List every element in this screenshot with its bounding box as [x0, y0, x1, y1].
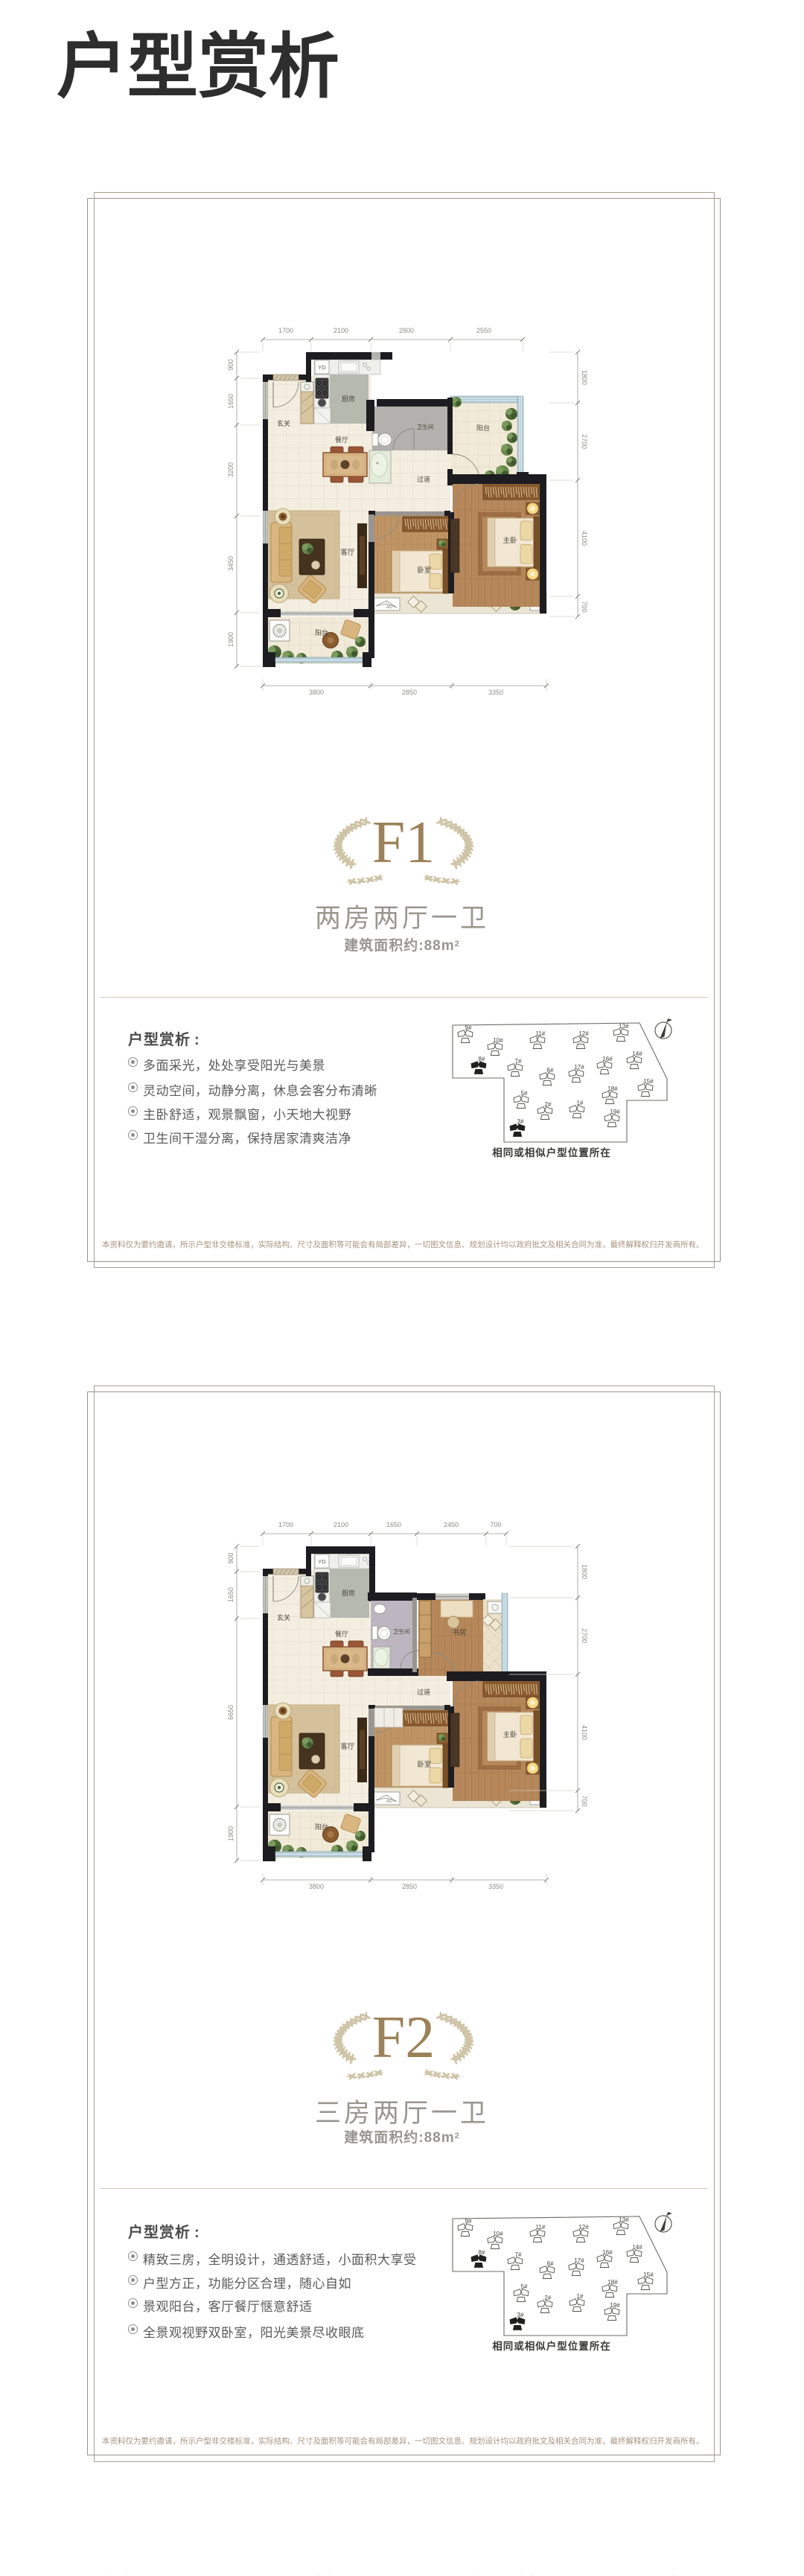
svg-text:900: 900 [227, 1552, 234, 1563]
svg-text:1650: 1650 [386, 1521, 401, 1528]
svg-text:卫生间: 卫生间 [417, 423, 434, 430]
svg-text:18#: 18# [607, 2279, 618, 2286]
svg-text:7#: 7# [515, 2251, 522, 2258]
svg-text:阳台: 阳台 [476, 424, 490, 432]
svg-text:主卧: 主卧 [502, 1730, 517, 1739]
svg-text:2550: 2550 [476, 327, 491, 334]
svg-text:17#: 17# [574, 2257, 584, 2264]
svg-text:相同或相似户型位置所在: 相同或相似户型位置所在 [492, 2340, 611, 2352]
svg-text:2#: 2# [545, 1101, 552, 1108]
svg-text:3200: 3200 [227, 462, 234, 477]
svg-text:2450: 2450 [444, 1521, 459, 1528]
svg-text:1650: 1650 [227, 1587, 234, 1602]
svg-text:客厅: 客厅 [340, 548, 355, 557]
svg-text:6#: 6# [547, 1067, 554, 1074]
svg-text:5#: 5# [521, 1090, 528, 1097]
svg-text:6650: 6650 [227, 1705, 234, 1720]
svg-text:4100: 4100 [581, 1725, 588, 1740]
svg-text:16#: 16# [602, 1056, 613, 1062]
svg-text:17#: 17# [574, 1064, 584, 1071]
svg-text:2100: 2100 [334, 327, 348, 334]
svg-text:阳台: 阳台 [315, 1823, 328, 1831]
svg-text:18#: 18# [607, 1085, 618, 1092]
svg-text:2850: 2850 [402, 1883, 417, 1890]
svg-text:2700: 2700 [581, 1628, 588, 1643]
svg-text:1700: 1700 [278, 327, 293, 334]
svg-text:1800: 1800 [581, 1564, 588, 1579]
svg-text:13#: 13# [619, 1023, 629, 1030]
svg-text:1650: 1650 [227, 394, 234, 409]
svg-text:3800: 3800 [309, 1883, 324, 1890]
svg-text:卧室: 卧室 [417, 1760, 431, 1769]
svg-text:9#: 9# [465, 1024, 472, 1031]
svg-text:书房: 书房 [452, 1628, 466, 1637]
svg-text:玄关: 玄关 [277, 419, 290, 427]
svg-text:15#: 15# [643, 2271, 654, 2278]
svg-text:1700: 1700 [278, 1521, 293, 1528]
svg-text:3800: 3800 [309, 689, 324, 696]
svg-text:主卧: 主卧 [502, 536, 517, 545]
svg-text:YD: YD [318, 1558, 326, 1565]
svg-text:餐厅: 餐厅 [335, 1630, 348, 1638]
svg-text:玄关: 玄关 [277, 1613, 290, 1622]
svg-text:15#: 15# [643, 1078, 654, 1085]
svg-text:900: 900 [227, 359, 234, 370]
svg-text:1800: 1800 [581, 370, 588, 385]
svg-text:700: 700 [490, 1521, 501, 1528]
svg-text:客厅: 客厅 [340, 1742, 355, 1751]
svg-text:厨房: 厨房 [342, 395, 355, 403]
svg-text:AC: AC [386, 605, 393, 610]
svg-text:2100: 2100 [334, 1521, 348, 1528]
svg-text:厨房: 厨房 [342, 1589, 355, 1597]
svg-text:9#: 9# [465, 2218, 472, 2225]
svg-text:1900: 1900 [227, 632, 234, 647]
svg-text:14#: 14# [632, 2244, 642, 2251]
svg-text:YD: YD [318, 364, 326, 371]
svg-text:8#: 8# [479, 1056, 485, 1062]
svg-text:3#: 3# [517, 1118, 524, 1125]
svg-text:11#: 11# [536, 1030, 546, 1037]
svg-text:阳台: 阳台 [315, 628, 328, 637]
svg-text:1#: 1# [577, 1100, 584, 1106]
svg-text:2#: 2# [545, 2295, 552, 2301]
svg-text:19#: 19# [610, 2302, 620, 2309]
svg-text:10#: 10# [493, 2231, 503, 2237]
svg-text:14#: 14# [632, 1051, 642, 1057]
svg-text:3#: 3# [517, 2312, 524, 2318]
svg-text:1900: 1900 [227, 1826, 234, 1841]
svg-text:1#: 1# [577, 2293, 584, 2300]
svg-text:12#: 12# [578, 1030, 589, 1037]
svg-text:2850: 2850 [402, 689, 417, 696]
svg-text:过道: 过道 [417, 1688, 430, 1696]
svg-text:相同或相似户型位置所在: 相同或相似户型位置所在 [492, 1147, 611, 1158]
svg-text:19#: 19# [610, 1109, 620, 1115]
svg-text:700: 700 [581, 601, 588, 612]
svg-text:12#: 12# [578, 2224, 589, 2231]
svg-text:3350: 3350 [488, 1883, 503, 1890]
svg-text:3350: 3350 [488, 689, 503, 696]
svg-text:过道: 过道 [417, 475, 430, 483]
svg-text:5#: 5# [521, 2283, 528, 2290]
svg-text:2800: 2800 [399, 327, 414, 334]
svg-text:10#: 10# [493, 1037, 503, 1044]
svg-text:卫生间: 卫生间 [393, 1627, 410, 1635]
svg-text:卧室: 卧室 [417, 566, 431, 575]
svg-text:3450: 3450 [227, 556, 234, 571]
svg-text:4100: 4100 [581, 531, 588, 546]
svg-text:700: 700 [581, 1795, 588, 1806]
svg-text:7#: 7# [515, 1058, 522, 1065]
svg-text:16#: 16# [602, 2249, 613, 2256]
svg-text:13#: 13# [619, 2216, 629, 2223]
svg-text:2700: 2700 [581, 434, 588, 449]
svg-text:AC: AC [386, 1799, 393, 1804]
svg-text:6#: 6# [547, 2260, 554, 2267]
svg-text:8#: 8# [479, 2249, 485, 2256]
svg-text:11#: 11# [536, 2224, 546, 2231]
svg-text:餐厅: 餐厅 [335, 436, 348, 444]
